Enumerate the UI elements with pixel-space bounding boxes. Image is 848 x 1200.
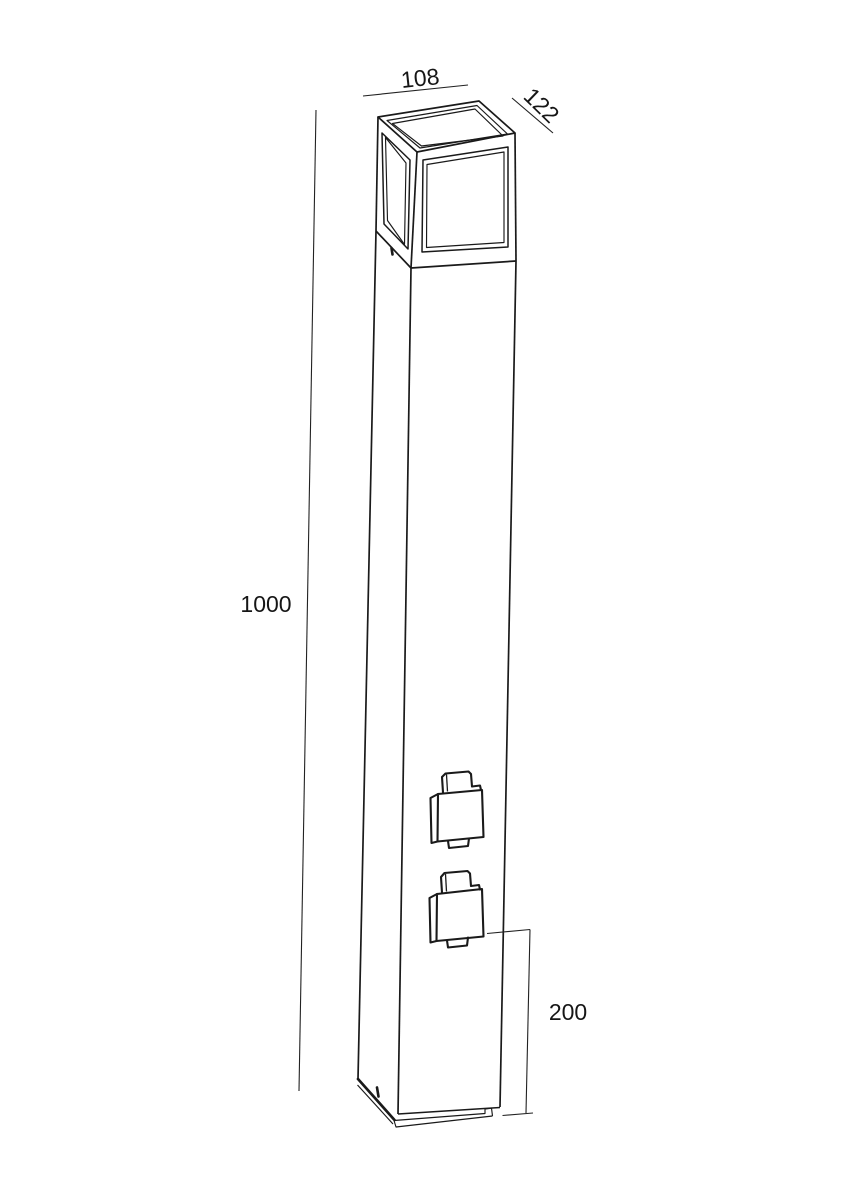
base-bevel-edge	[358, 1079, 395, 1120]
dimension-socket-height-line	[526, 930, 530, 1114]
dimension-head-width: 108	[363, 63, 468, 96]
base-plate-bottom-edge	[394, 1116, 493, 1127]
post-edge-left-back	[358, 231, 376, 1079]
dimension-post-height-label: 1000	[240, 591, 291, 617]
head-top-face-outline	[378, 101, 515, 152]
post-body	[358, 231, 516, 1114]
head-edge-right	[515, 133, 516, 261]
base-bevel-inner-line	[358, 1085, 394, 1124]
lamp-head	[376, 101, 516, 268]
base-plate-top-edge	[394, 1108, 493, 1120]
socket-upper-cover	[438, 790, 484, 842]
head-screw-icon	[392, 248, 393, 255]
drawing-canvas: 108 122 1000 200	[0, 0, 848, 1200]
dimension-post-height: 1000	[240, 110, 316, 1091]
head-front-window-glass	[427, 152, 505, 248]
dimension-socket-height-label: 200	[549, 999, 587, 1025]
post-edge-front-left	[398, 268, 411, 1114]
dimension-head-width-label: 108	[400, 63, 441, 93]
base-plate	[358, 1079, 501, 1127]
power-socket-upper	[431, 772, 484, 849]
dimension-head-depth: 122	[512, 83, 564, 133]
socket-lower-hinge-inner-line	[446, 874, 447, 892]
post-edge-front-right	[500, 261, 516, 1107]
dimension-socket-height-extension-line	[487, 930, 530, 934]
dimension-post-height-line	[299, 110, 316, 1091]
socket-lower-cover	[437, 889, 484, 941]
power-socket-lower	[430, 871, 484, 948]
head-edge-front-left	[411, 152, 417, 268]
dimension-head-depth-label: 122	[519, 83, 565, 128]
dimension-socket-height-bottom-tick	[503, 1113, 534, 1116]
base-screw-icon	[377, 1088, 379, 1097]
bollard-dimension-drawing: 108 122 1000 200	[0, 0, 848, 1200]
socket-upper-hinge-inner-line	[447, 775, 448, 792]
head-edge-left-back	[376, 117, 378, 231]
